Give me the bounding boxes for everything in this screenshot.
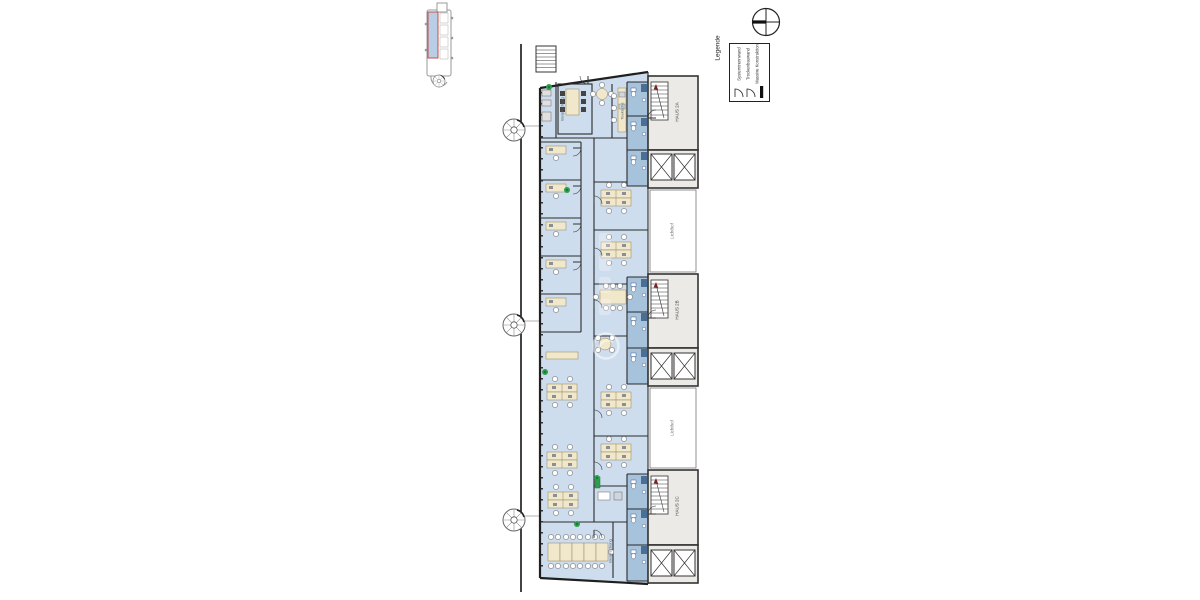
elevator-icon (674, 353, 695, 379)
stair-core-haus-2b (648, 274, 698, 386)
round-table (597, 89, 608, 100)
external-spiral-stair-icon (503, 119, 525, 141)
solid-wall-icon (760, 86, 763, 98)
plant-icon (542, 369, 548, 375)
room-label: Besprechung (608, 539, 613, 563)
plant-icon (564, 187, 570, 193)
elevator-icon (674, 550, 695, 576)
door-swing-icon (735, 89, 743, 97)
core-label: HAUS 2C (675, 496, 680, 516)
core-label: HAUS 2B (675, 300, 680, 319)
plant-icon (574, 521, 580, 527)
floor-plan-page: Legende Systemtrennwand Trockenbauwand M… (0, 0, 1200, 600)
door-swing-icon (747, 89, 755, 97)
lightwell-label: Lichthof (670, 420, 675, 436)
legend-title: Legende (715, 35, 722, 60)
elevator-icon (651, 550, 672, 576)
external-spiral-stair-icon (503, 314, 525, 336)
elevator-icon (674, 154, 695, 180)
elevator-icon (651, 353, 672, 379)
plant-icon (546, 84, 552, 90)
lightwell-label: Lichthof (670, 223, 675, 239)
legend-item-label: Massive Konstruktion (755, 44, 760, 84)
stair-core-haus-2a (648, 76, 698, 188)
legend-item-label: Systemtrennwand (737, 47, 742, 81)
entrance-stair-icon (536, 46, 556, 72)
legend-item-label: Trockenbauwand (746, 48, 751, 80)
room-label: Besprechung (560, 97, 565, 121)
legend-symbols (733, 85, 771, 99)
floor-plan-drawing (0, 0, 1200, 600)
elevator-icon (651, 154, 672, 180)
core-label: HAUS 2A (675, 102, 680, 121)
north-compass-icon (753, 9, 780, 36)
key-plan-highlight (428, 12, 438, 58)
stair-core-haus-2c (648, 470, 698, 583)
key-plan-thumbnail (425, 3, 454, 87)
external-spiral-stair-icon (503, 509, 525, 531)
room-label: Teeküche (620, 102, 625, 119)
meeting-table (566, 89, 579, 115)
plant-icon (594, 475, 600, 481)
